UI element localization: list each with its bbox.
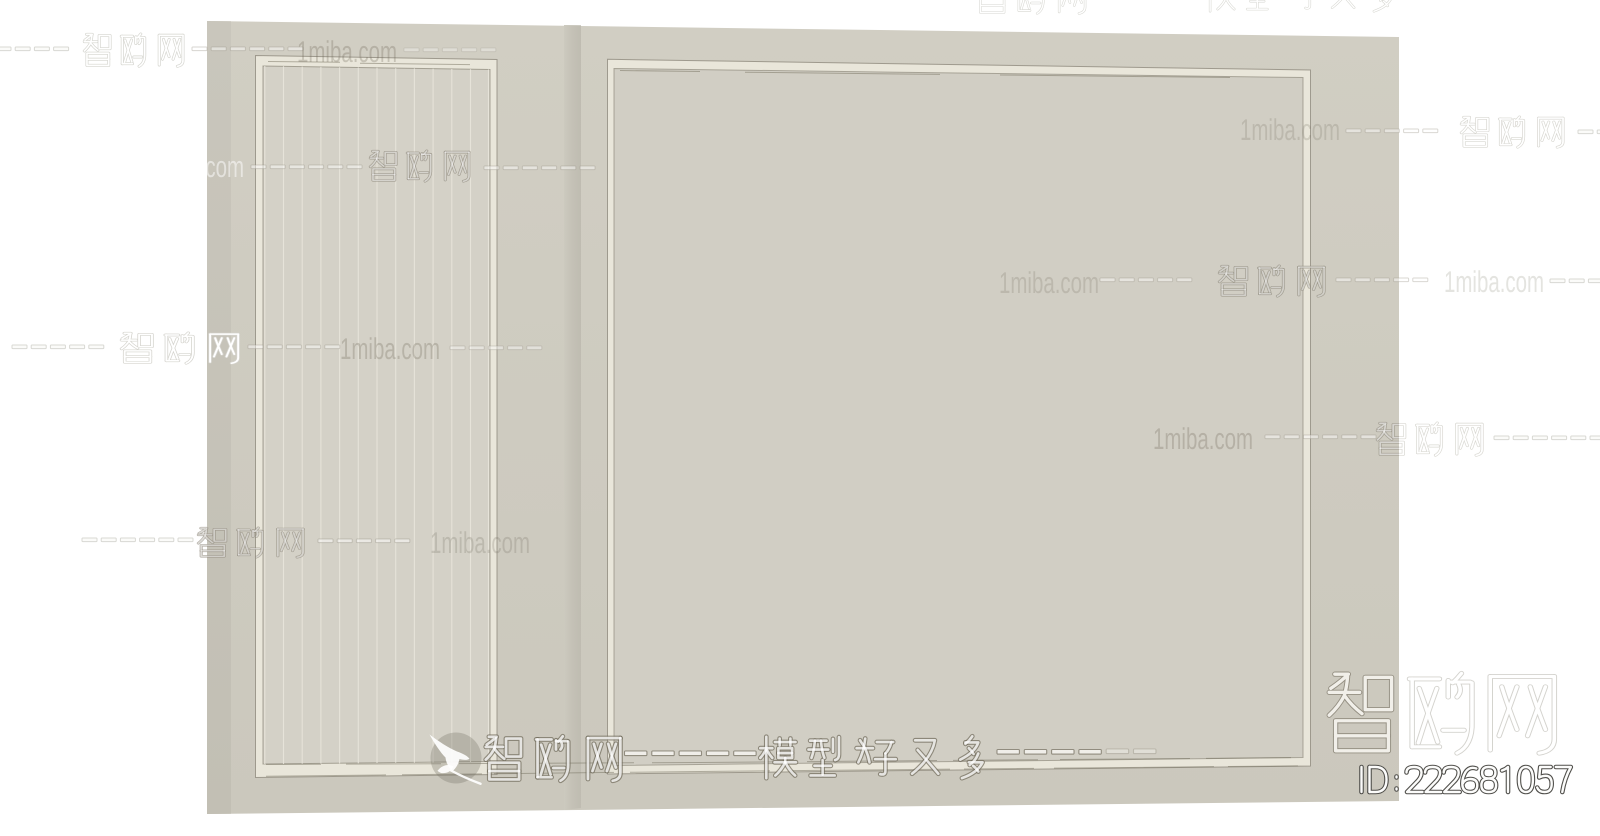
svg-text:1miba.com: 1miba.com [1444,266,1544,299]
svg-text:1miba.com: 1miba.com [297,36,397,69]
svg-text:1miba.com: 1miba.com [144,151,244,184]
svg-text:1miba.com: 1miba.com [1240,114,1340,147]
svg-text:1miba.com: 1miba.com [430,527,530,560]
svg-text:1miba.com: 1miba.com [340,333,440,366]
svg-text:1miba.com: 1miba.com [1153,423,1253,456]
svg-text:1miba.com: 1miba.com [999,267,1099,300]
